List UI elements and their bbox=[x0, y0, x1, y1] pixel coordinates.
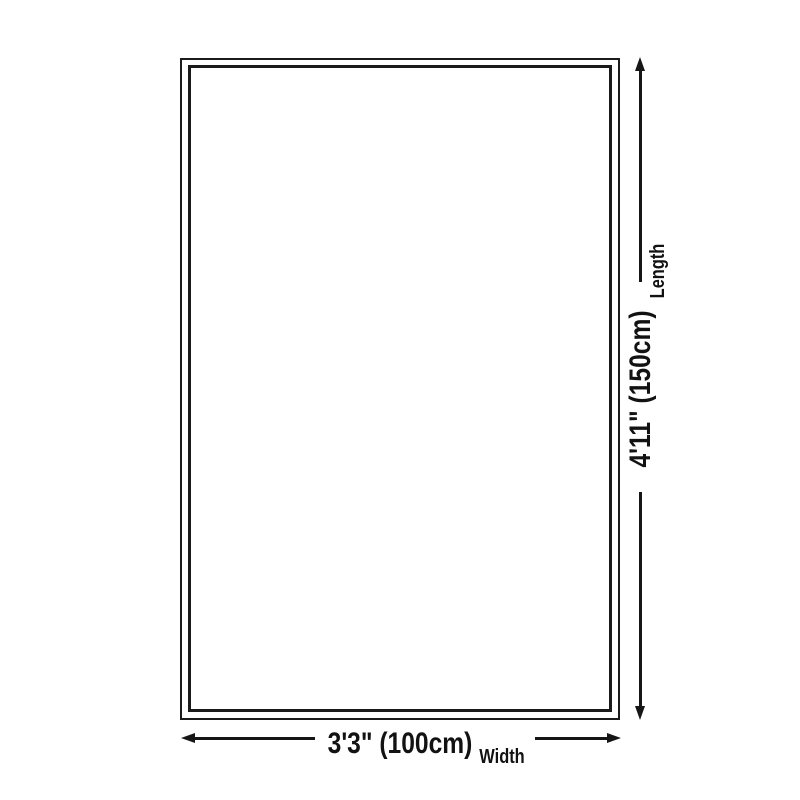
width-dimension-line-left bbox=[194, 737, 315, 740]
length-dimension-line-bottom bbox=[639, 492, 642, 707]
width-value: 3'3" (100cm) bbox=[328, 729, 473, 759]
width-axis-label: Width bbox=[479, 747, 524, 767]
length-dimension-line-top bbox=[639, 69, 642, 282]
rug-outline-outer bbox=[180, 58, 620, 720]
dimension-diagram-canvas: Length 4'11" (150cm) 3'3" (100cm) Width bbox=[0, 0, 800, 800]
length-axis-label: Length bbox=[648, 244, 668, 299]
rug-outline-inner bbox=[188, 65, 612, 712]
width-dimension-line-right bbox=[535, 737, 608, 740]
arrow-right-icon bbox=[607, 733, 621, 743]
length-value: 4'11" (150cm) bbox=[626, 310, 656, 467]
arrow-left-icon bbox=[181, 733, 195, 743]
arrow-down-icon bbox=[635, 706, 645, 720]
